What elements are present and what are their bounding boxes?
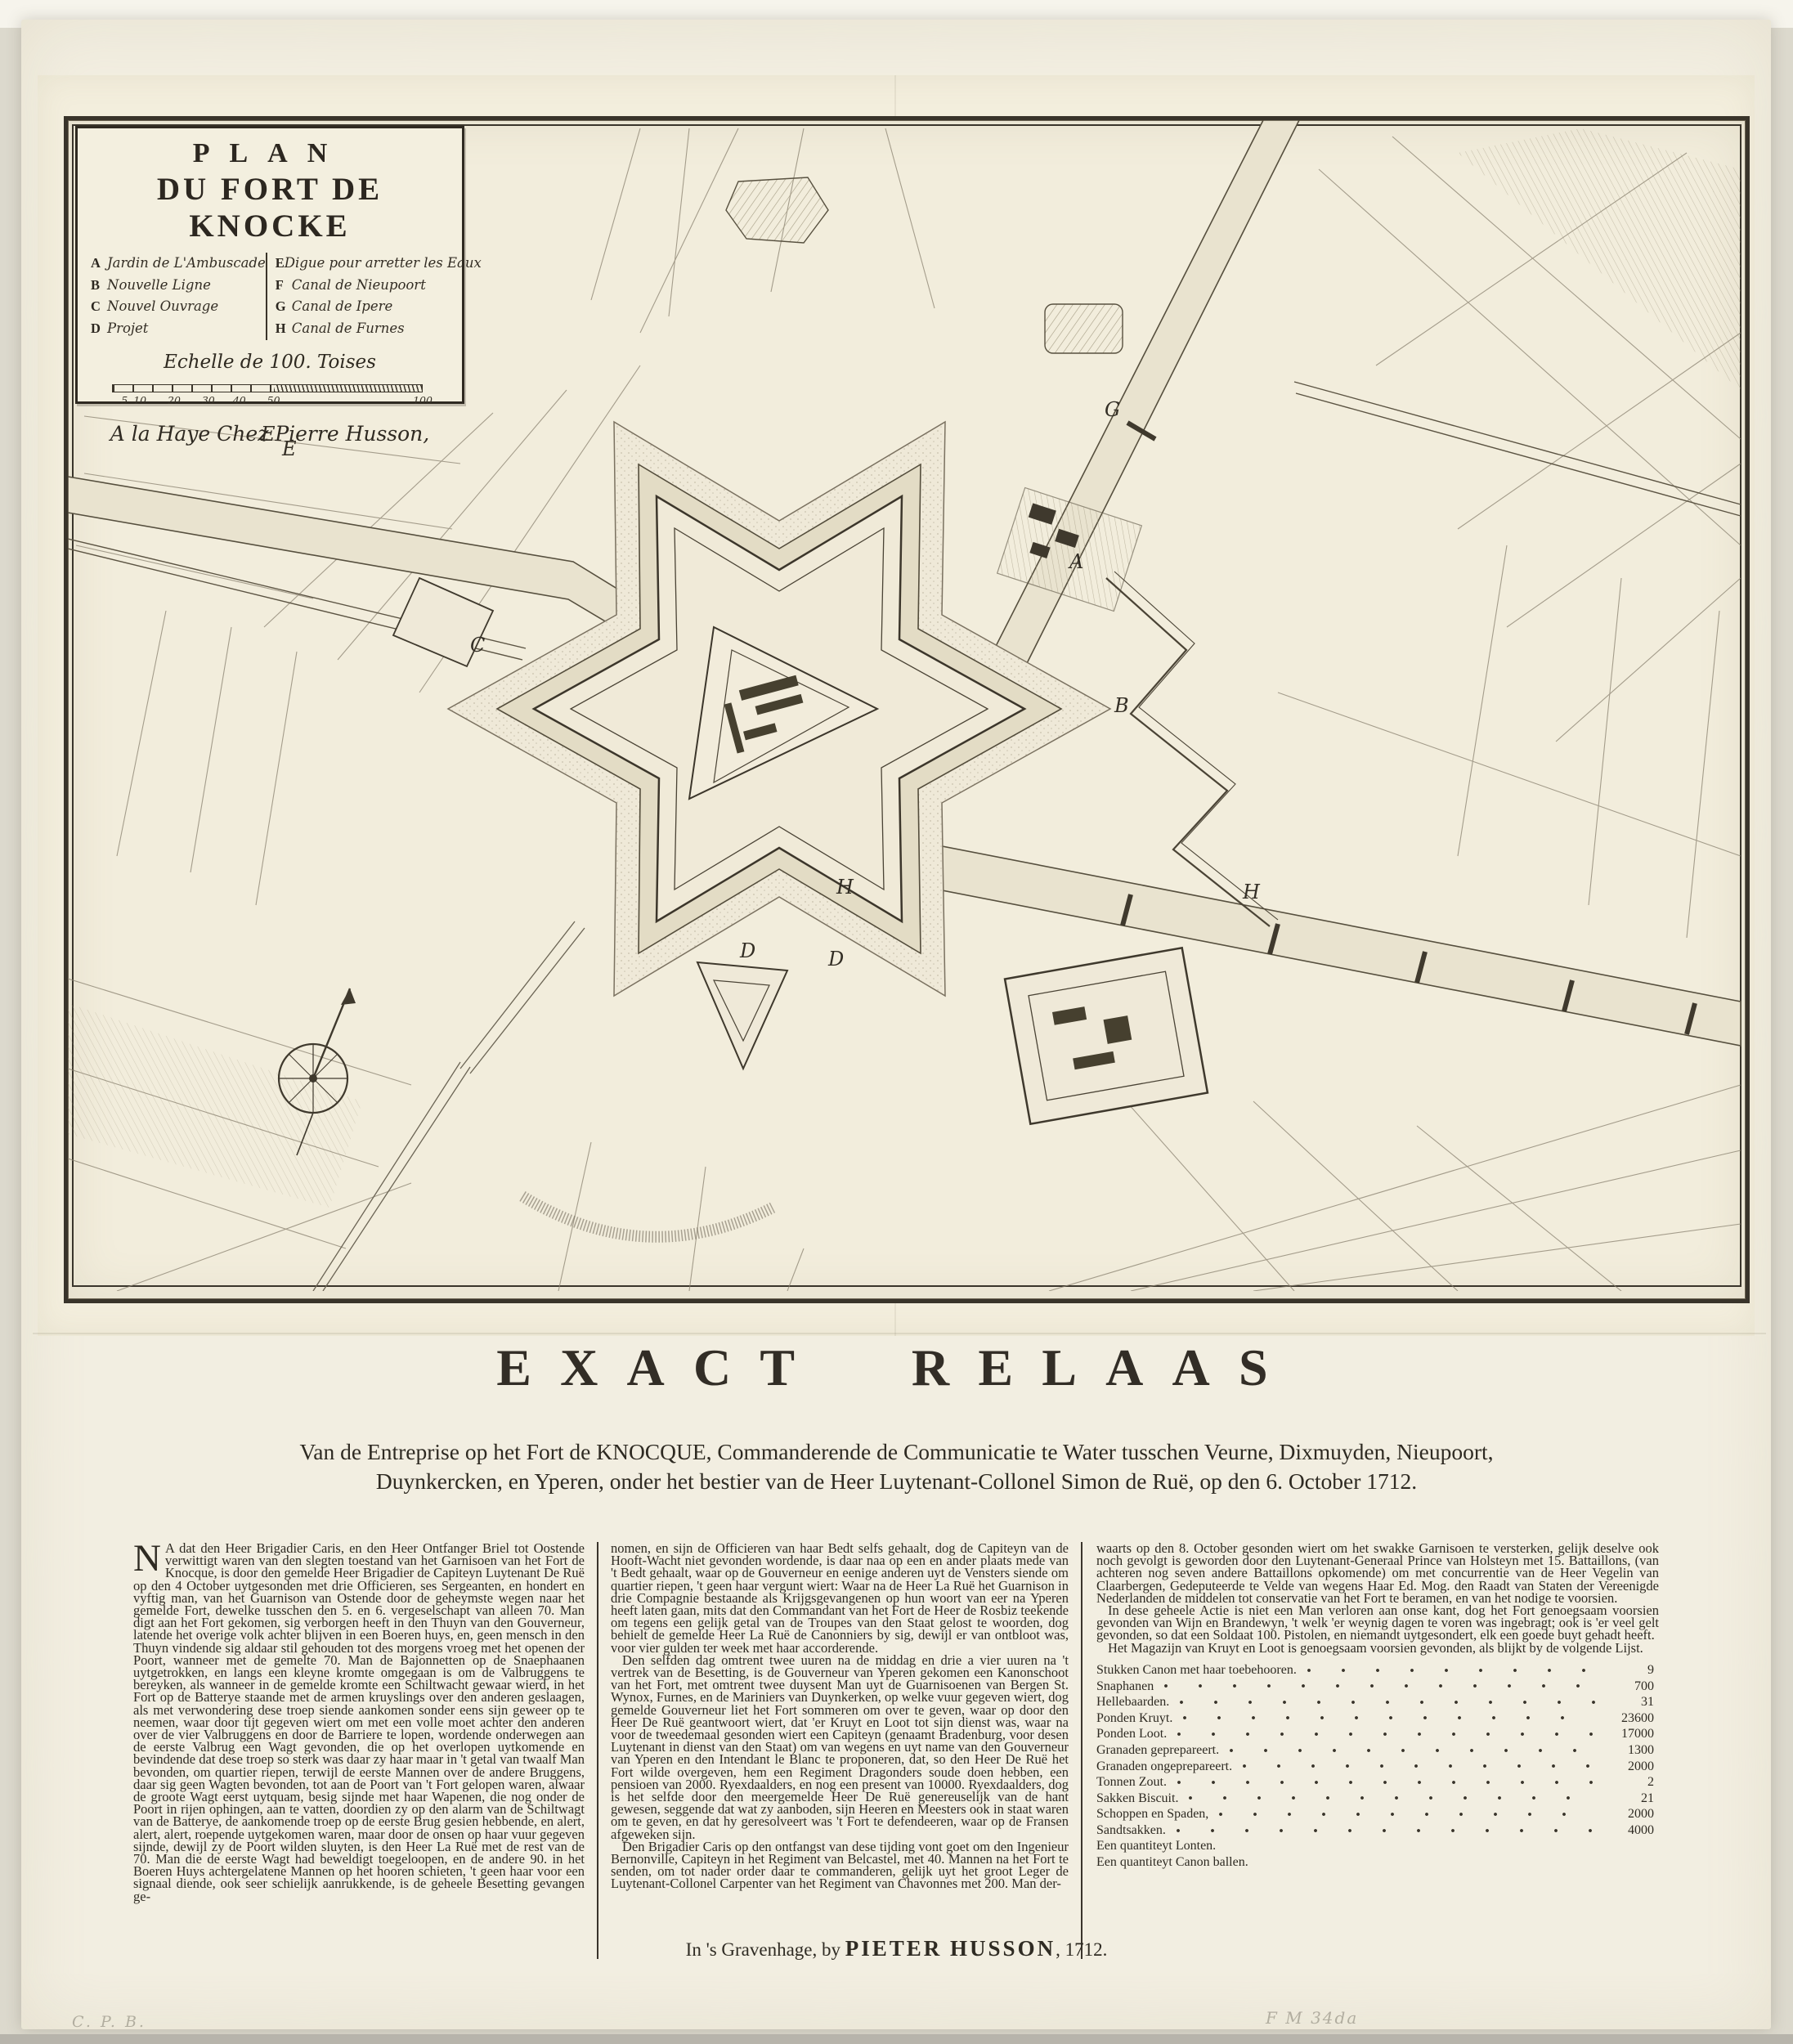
legend-label: Digue pour arretter les Eaux <box>285 253 482 275</box>
paragraph-text: A dat den Heer Brigadier Caris, en den H… <box>133 1542 585 1904</box>
dot-leader <box>1217 1810 1595 1818</box>
pencil-annotation-right: F M 34da <box>1266 2008 1358 2028</box>
inventory-label: Granaden geprepareert. <box>1096 1744 1219 1756</box>
inventory-value: 1300 <box>1607 1744 1659 1756</box>
paragraph: nomen, en sijn de Officieren van haar Be… <box>611 1542 1069 1654</box>
canal-nieupoort <box>68 477 645 645</box>
legend-item-B: B Nouvelle Ligne <box>91 275 266 297</box>
label-B: B <box>1114 694 1129 717</box>
inventory-label: Snaphanen <box>1096 1680 1154 1692</box>
dot-leader <box>1177 1698 1595 1706</box>
inventory-label: Ponden Kruyt. <box>1096 1712 1172 1724</box>
inventory-row: Ponden Loot. 17000 <box>1096 1726 1659 1742</box>
pond <box>726 177 828 243</box>
road-line <box>460 921 575 1069</box>
cartouche-imprint: A la Haye Chez Pierre Husson, <box>78 422 462 446</box>
paragraph: In dese geheele Actie is niet een Man ve… <box>1096 1604 1659 1642</box>
pencil-annotation-left: C. P. B. <box>72 2013 146 2031</box>
text-column-3: waarts op den 8. October gesonden wiert … <box>1081 1542 1659 1959</box>
map-title-line2: DU FORT DE KNOCKE <box>78 171 462 244</box>
title-cartouche: PLAN DU FORT DE KNOCKE A Jardin de L'Amb… <box>75 126 464 404</box>
legend-item-D: D Projet <box>91 318 266 340</box>
relaas-heading: EXACT RELAAS <box>0 1338 1793 1398</box>
inventory-extra-1: Een quantiteyt Lonten. <box>1096 1838 1659 1854</box>
horizontal-crease <box>33 1333 1766 1334</box>
legend-left-column: A Jardin de L'Ambuscade B Nouvelle Ligne… <box>91 253 266 340</box>
dot-leader <box>1186 1794 1595 1802</box>
legend-label: Nouvel Ouvrage <box>107 296 218 318</box>
inventory-label: Sandtsakken. <box>1096 1824 1166 1836</box>
legend-label: Projet <box>107 318 148 340</box>
new-line-zigzag <box>1106 572 1278 926</box>
label-D: D <box>739 939 755 962</box>
inventory-row: Stukken Canon met haar toebehooren. 9 <box>1096 1662 1659 1679</box>
inventory-value: 23600 <box>1607 1712 1659 1724</box>
dot-leader <box>1174 1827 1595 1835</box>
ambuscade-garden <box>997 488 1142 612</box>
publisher-imprint: In 's Gravenhage, by PIETER HUSSON, 1712… <box>0 1936 1793 1961</box>
legend-key: C <box>91 296 107 318</box>
legend-key: D <box>91 318 107 340</box>
hatched-field <box>1458 128 1741 390</box>
inventory-label: Hellebaarden. <box>1096 1696 1169 1708</box>
road-line <box>470 928 585 1074</box>
dot-leader <box>1162 1682 1595 1690</box>
pond <box>1045 304 1123 353</box>
legend-item-E: E Digue pour arretter les Eaux <box>276 253 455 275</box>
legend-item-A: A Jardin de L'Ambuscade <box>91 253 266 275</box>
scale-bar-rule <box>112 384 423 392</box>
dot-leader <box>1305 1666 1595 1674</box>
paragraph: waarts op den 8. October gesonden wiert … <box>1096 1542 1659 1604</box>
text-column-1: NA dat den Heer Brigadier Caris, en den … <box>133 1542 585 1959</box>
legend-label: Nouvelle Ligne <box>107 275 211 297</box>
imprint-post: , 1712. <box>1056 1939 1107 1960</box>
paragraph: Den selfden dag omtrent twee uuren na de… <box>611 1654 1069 1840</box>
legend-item-G: G Canal de Ipere <box>276 296 455 318</box>
inventory-row: Tonnen Zout. 2 <box>1096 1774 1659 1791</box>
subtitle-line2: Duynkercken, en Yperen, onder het bestie… <box>98 1467 1695 1496</box>
photo-backing-bottom <box>0 2034 1793 2044</box>
inventory-value: 700 <box>1607 1680 1659 1692</box>
paragraph: Den Brigadier Caris op den ontfangst van… <box>611 1840 1069 1890</box>
inventory-value: 2 <box>1607 1776 1659 1788</box>
inventory-row: Granaden geprepareert. 1300 <box>1096 1742 1659 1759</box>
label-D2: D <box>827 948 844 970</box>
relaas-subtitle: Van de Entreprise op het Fort de KNOCQUE… <box>98 1437 1695 1497</box>
inventory-value: 31 <box>1607 1696 1659 1708</box>
imprint-publisher-name: PIETER HUSSON <box>845 1936 1056 1961</box>
dot-leader <box>1175 1730 1595 1738</box>
inventory-value: 2000 <box>1607 1808 1659 1820</box>
hatched-meadow <box>68 1003 362 1208</box>
scale-tick: 20 <box>168 394 181 406</box>
legend-key: H <box>276 318 292 340</box>
inventory-value: 2000 <box>1607 1760 1659 1773</box>
inventory-value: 21 <box>1607 1792 1659 1804</box>
paragraph: NA dat den Heer Brigadier Caris, en den … <box>133 1542 585 1903</box>
legend-key: F <box>276 275 292 297</box>
inventory-row: Hellebaarden. 31 <box>1096 1694 1659 1710</box>
legend-label: Canal de Nieupoort <box>292 275 426 297</box>
legend-label: Canal de Furnes <box>292 318 405 340</box>
inventory-value: 4000 <box>1607 1824 1659 1836</box>
dot-leader <box>1240 1762 1595 1770</box>
legend-item-C: C Nouvel Ouvrage <box>91 296 266 318</box>
text-column-2: nomen, en sijn de Officieren van haar Be… <box>597 1542 1069 1959</box>
dot-leader <box>1227 1746 1595 1755</box>
road-line <box>1294 382 1741 504</box>
paragraph: Het Magazijn van Kruyt en Loot is genoeg… <box>1096 1642 1659 1654</box>
magazine-inventory: Stukken Canon met haar toebehooren. 9 Sn… <box>1096 1662 1659 1871</box>
square-fort <box>1005 948 1208 1123</box>
inventory-row: Snaphanen 700 <box>1096 1678 1659 1694</box>
scale-tick: 50 <box>267 394 280 406</box>
scale-tick: 10 <box>133 394 146 406</box>
legend-key: B <box>91 275 107 297</box>
label-G: G <box>1105 398 1120 421</box>
scale-bar: 5 10 20 30 40 50 100 <box>112 384 423 404</box>
inventory-row: Schoppen en Spaden, 2000 <box>1096 1806 1659 1822</box>
label-A: A <box>1068 550 1083 573</box>
label-H: H <box>836 876 854 899</box>
star-fort <box>393 422 1110 1069</box>
inventory-row: Sandtsakken. 4000 <box>1096 1822 1659 1839</box>
road-line <box>1296 393 1741 516</box>
map-legend: A Jardin de L'Ambuscade B Nouvelle Ligne… <box>91 253 450 340</box>
inventory-label: Stukken Canon met haar toebehooren. <box>1096 1664 1297 1676</box>
legend-label: Canal de Ipere <box>292 296 393 318</box>
inventory-row: Ponden Kruyt. 23600 <box>1096 1710 1659 1727</box>
dot-leader <box>1181 1714 1595 1722</box>
legend-right-column: E Digue pour arretter les Eaux F Canal d… <box>266 253 455 340</box>
legend-key: G <box>276 296 292 318</box>
scale-tick: 5 <box>121 394 128 406</box>
label-H2: H <box>1242 881 1261 903</box>
dot-leader <box>1175 1778 1595 1786</box>
legend-item-H: H Canal de Furnes <box>276 318 455 340</box>
ravelin-south <box>697 962 787 1069</box>
map-title-line1: PLAN <box>78 138 462 169</box>
inventory-value: 17000 <box>1607 1728 1659 1740</box>
relaas-columns: NA dat den Heer Brigadier Caris, en den … <box>133 1542 1669 1959</box>
scale-label: Echelle de 100. Toises <box>78 352 462 373</box>
scale-tick: 100 <box>413 394 433 406</box>
inventory-extra-2: Een quantiteyt Canon ballen. <box>1096 1854 1659 1871</box>
subtitle-line1: Van de Entreprise op het Fort de KNOCQUE… <box>98 1437 1695 1467</box>
scale-tick: 30 <box>202 394 215 406</box>
legend-item-F: F Canal de Nieupoort <box>276 275 455 297</box>
crescent-hatching <box>522 1196 773 1237</box>
legend-key: E <box>276 253 285 275</box>
fort-map: F E E G A B C D H D H PLAN DU FORT DE KN… <box>64 116 1750 1303</box>
inventory-label: Schoppen en Spaden, <box>1096 1808 1208 1820</box>
legend-label: Jardin de L'Ambuscade <box>107 253 266 275</box>
label-C: C <box>470 634 485 657</box>
inventory-label: Ponden Loot. <box>1096 1728 1167 1740</box>
inventory-row: Sakken Biscuit. 21 <box>1096 1791 1659 1807</box>
inventory-label: Sakken Biscuit. <box>1096 1792 1178 1804</box>
inventory-row: Granaden ongeprepareert. 2000 <box>1096 1758 1659 1774</box>
imprint-pre: In 's Gravenhage, by <box>686 1939 845 1960</box>
drop-cap: N <box>133 1542 165 1574</box>
inventory-value: 9 <box>1607 1664 1659 1676</box>
inventory-label: Granaden ongeprepareert. <box>1096 1760 1232 1773</box>
scale-tick: 40 <box>233 394 246 406</box>
legend-key: A <box>91 253 107 275</box>
inventory-label: Tonnen Zout. <box>1096 1776 1167 1788</box>
